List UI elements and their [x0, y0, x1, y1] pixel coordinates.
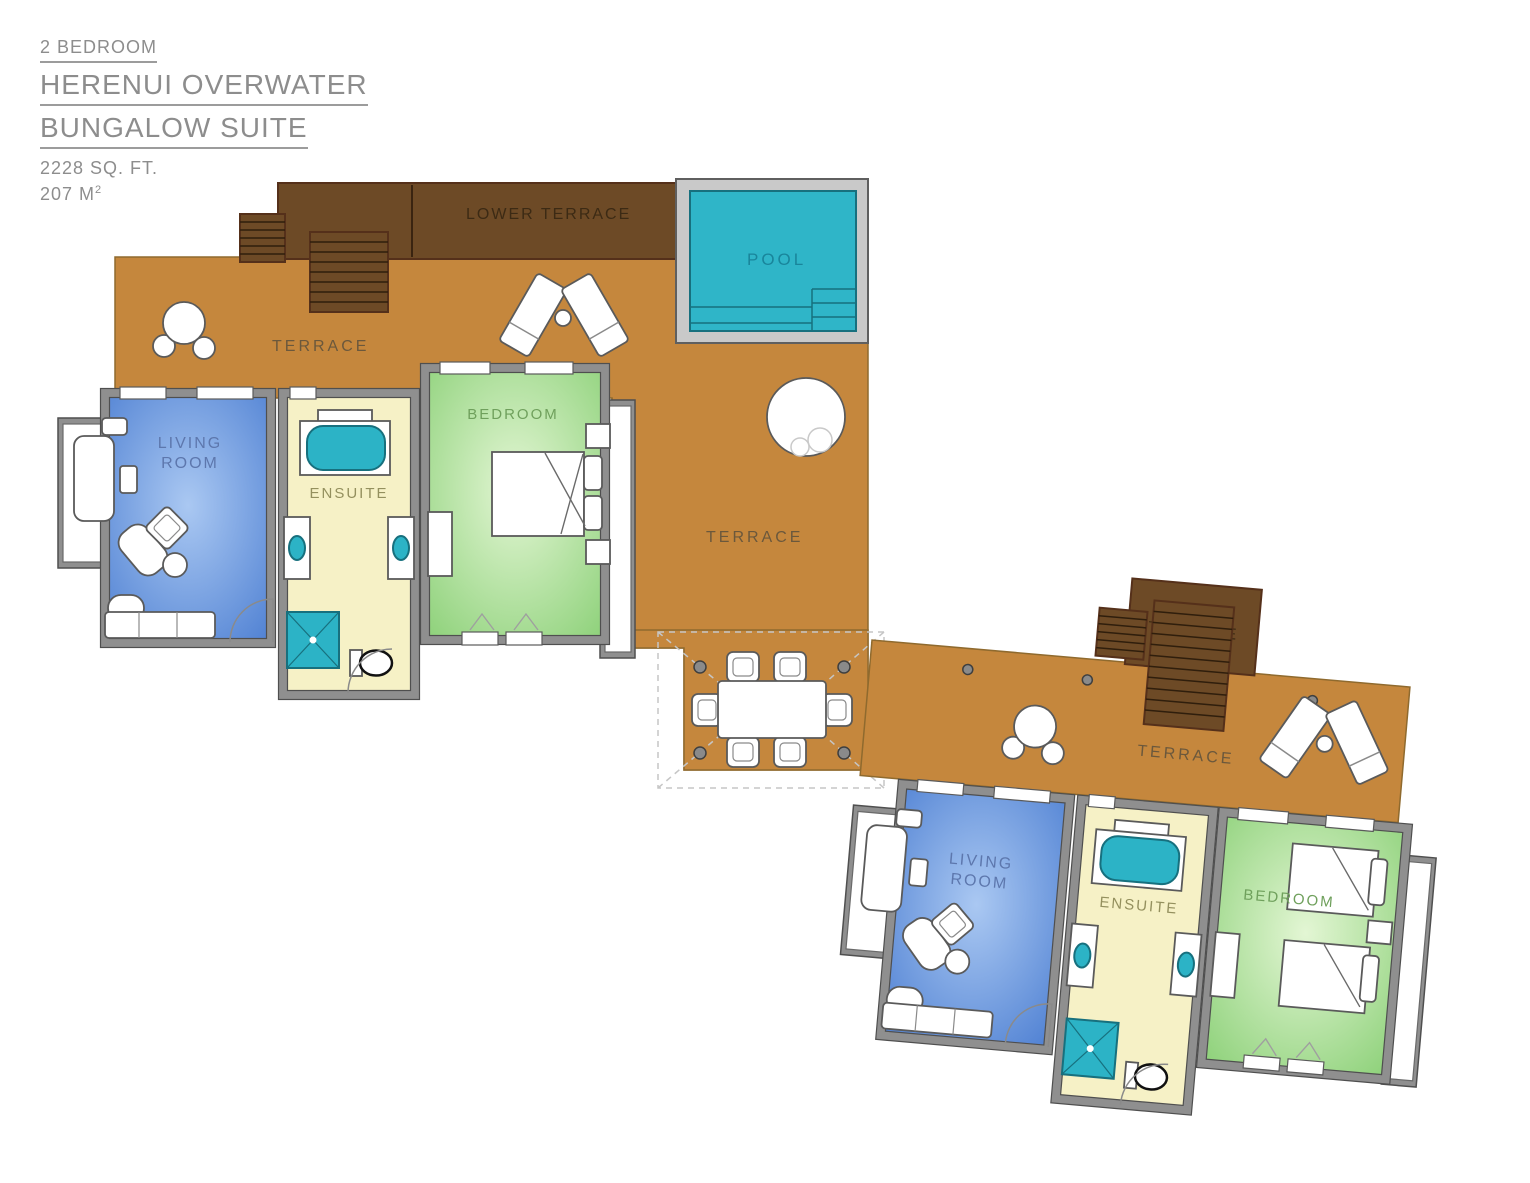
area-sqft: 2228 SQ. FT.: [40, 157, 368, 180]
upper-small-stairs: [240, 214, 285, 262]
lower-bedroom: BEDROOM: [1196, 806, 1439, 1087]
lower-living-room: LIVING ROOM: [833, 774, 1075, 1055]
lower-main-stairs: [1144, 600, 1235, 731]
lower-small-stairs: [1095, 608, 1147, 660]
upper-lower-terrace-label: LOWER TERRACE: [466, 206, 631, 223]
upper-terrace-label-left: TERRACE: [272, 338, 369, 355]
upper-living-label-2: ROOM: [161, 455, 219, 472]
title-block: 2 BEDROOM HERENUI OVERWATER BUNGALOW SUI…: [40, 36, 368, 206]
upper-living-room: LIVING ROOM: [58, 387, 276, 648]
pool: POOL: [676, 179, 868, 343]
floor-plan-page: 2 BEDROOM HERENUI OVERWATER BUNGALOW SUI…: [0, 0, 1530, 1183]
dining-table: [718, 681, 826, 738]
suite-category: 2 BEDROOM: [40, 36, 157, 63]
lower-ensuite: ENSUITE: [1051, 794, 1219, 1116]
upper-ensuite-label: ENSUITE: [309, 485, 388, 502]
upper-living-label-1: LIVING: [158, 435, 222, 452]
upper-bedroom-label: BEDROOM: [467, 406, 559, 423]
upper-ensuite: ENSUITE: [279, 387, 420, 700]
suite-name-line1: HERENUI OVERWATER: [40, 67, 368, 106]
round-daybed-icon: [767, 378, 845, 456]
upper-bedroom: BEDROOM: [421, 362, 636, 658]
upper-terrace-label-main: TERRACE: [706, 529, 803, 546]
upper-main-stairs: [310, 232, 388, 312]
pool-label: POOL: [747, 250, 806, 269]
suite-name-line2: BUNGALOW SUITE: [40, 110, 308, 149]
area-m2: 207 M2: [40, 183, 368, 206]
lower-bungalow: LOWER TERRACE: [829, 556, 1458, 1134]
